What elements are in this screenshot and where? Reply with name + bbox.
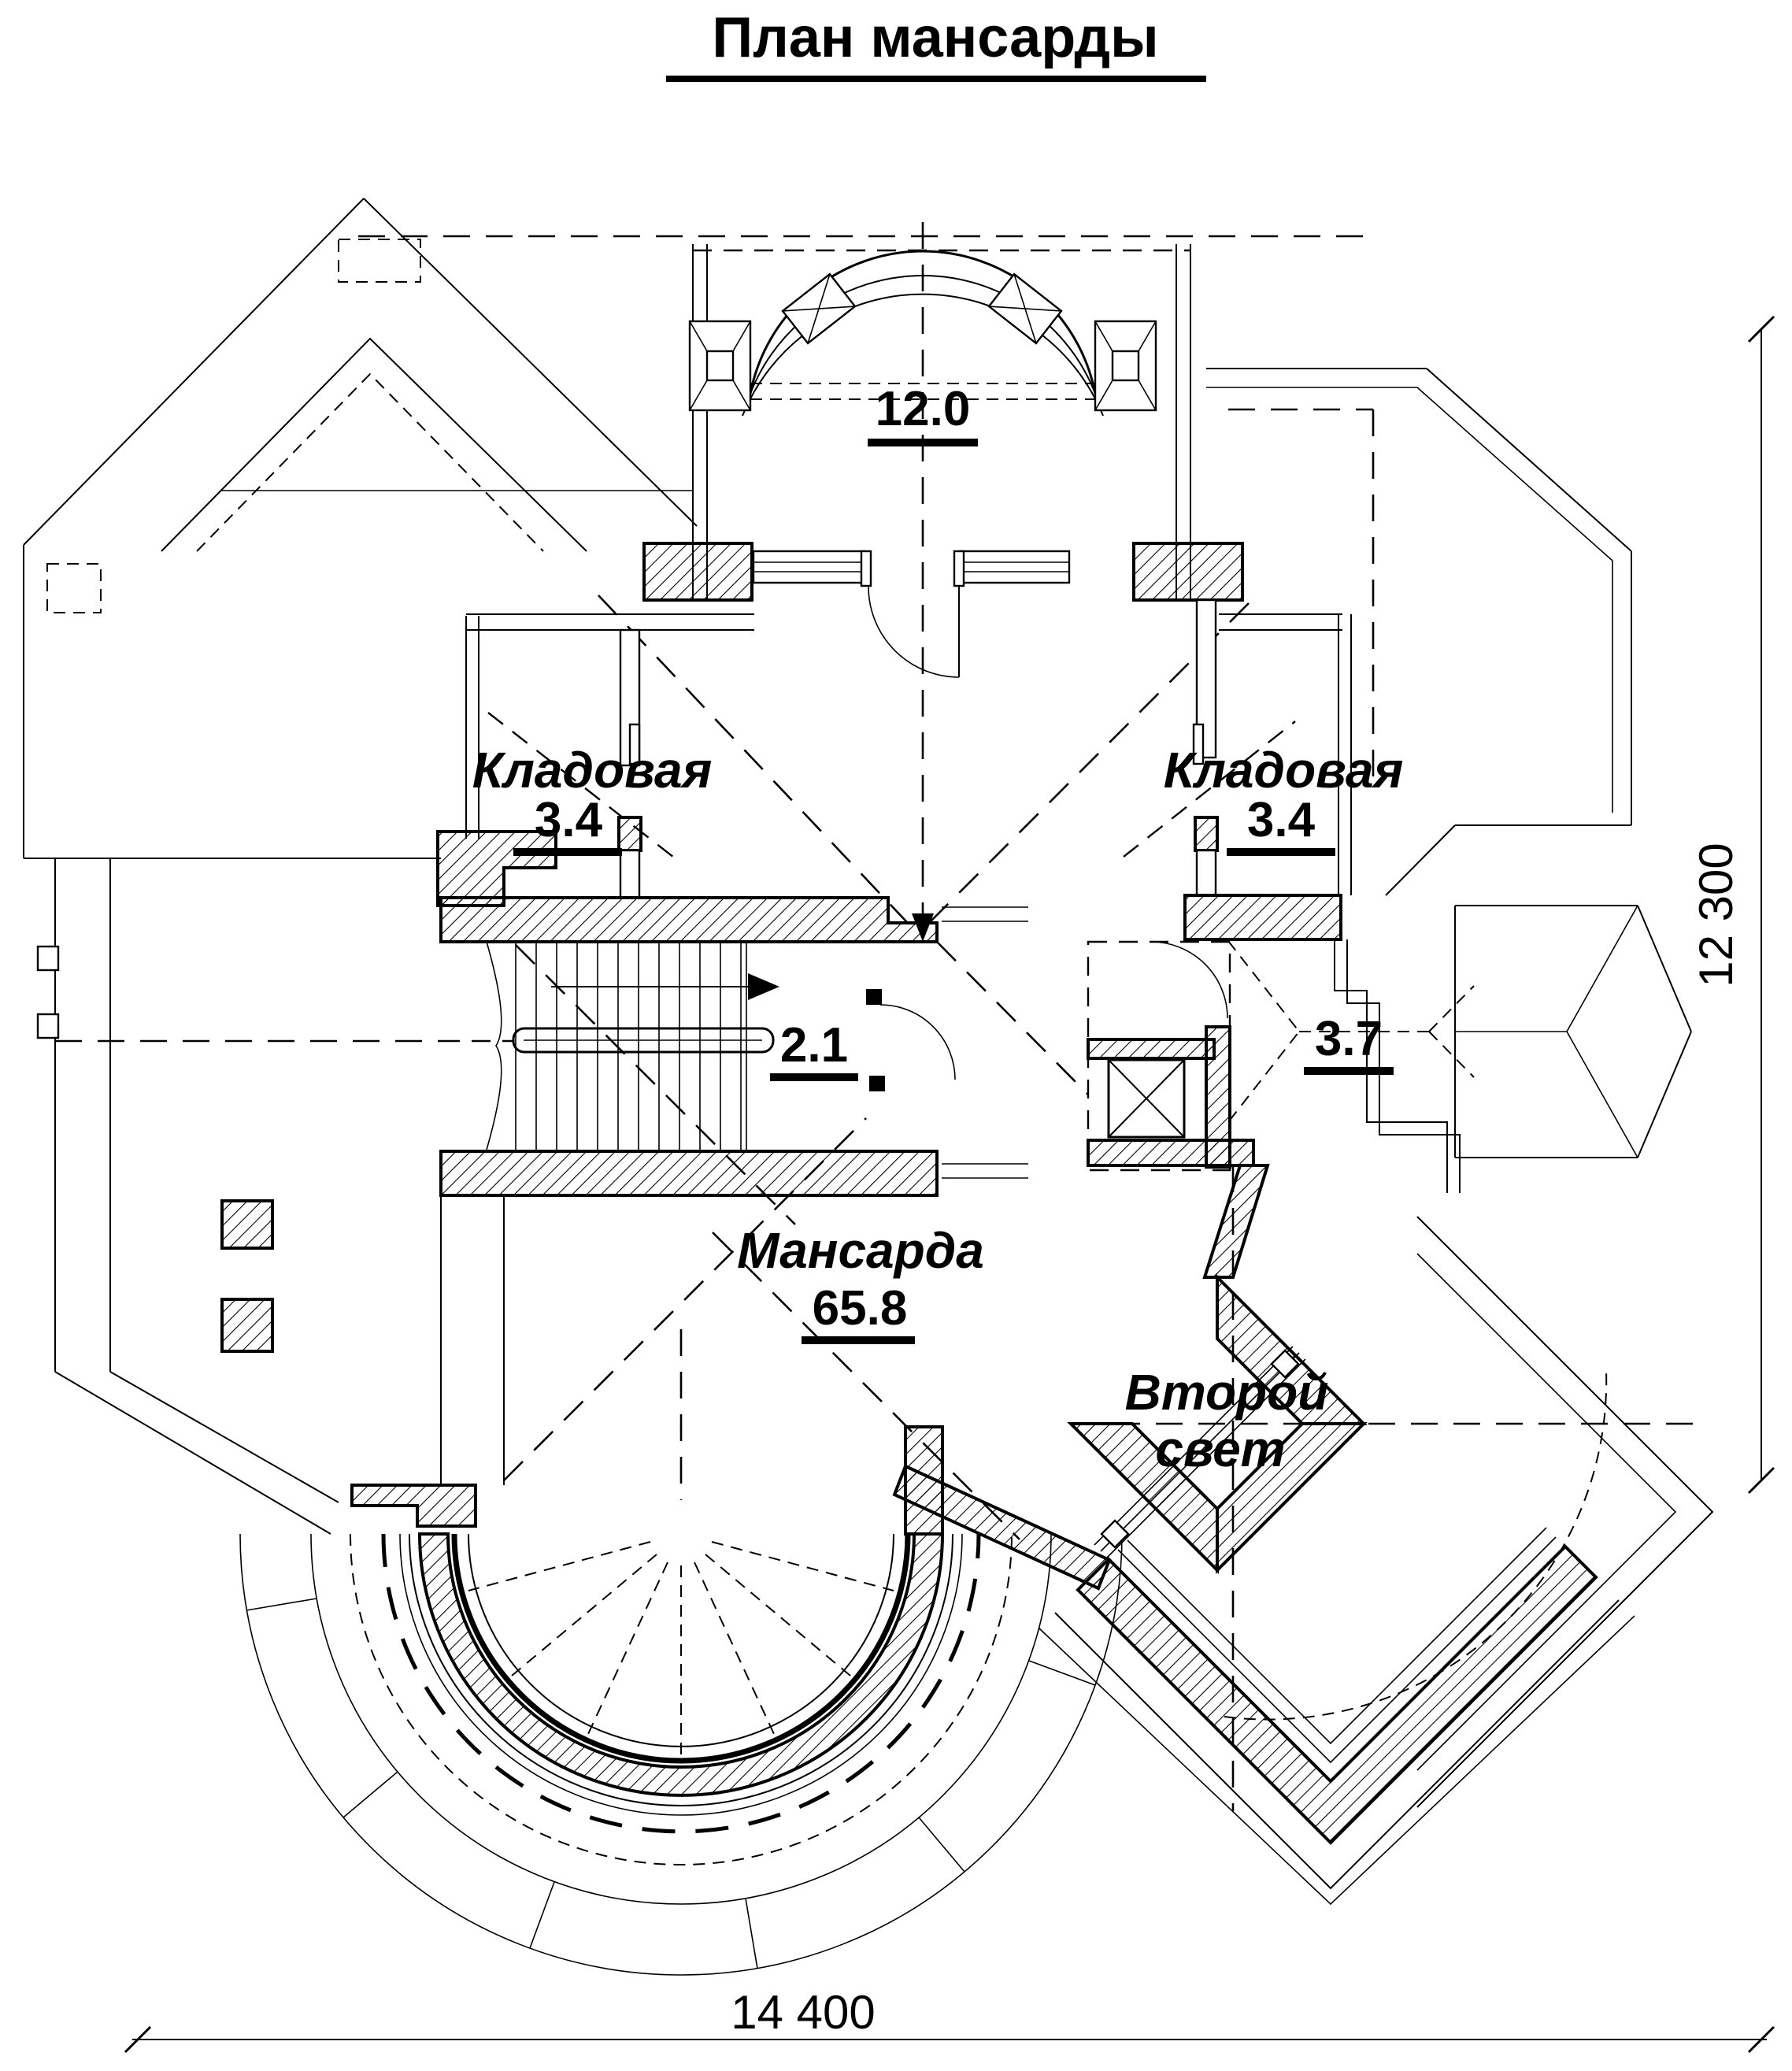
balcony-door <box>861 551 964 677</box>
balcony-wall-hatched <box>644 543 752 600</box>
stair-break-line <box>487 942 502 1150</box>
staircase <box>438 832 1028 1195</box>
door-jamb <box>866 989 882 1005</box>
stair-window-top <box>942 907 1028 921</box>
storage-left-name: Кладовая <box>472 742 713 798</box>
parapet-wall-hatched <box>1078 1547 1596 1843</box>
dimensions: 14 400 12 300 <box>125 317 1774 2052</box>
storage-right-partition <box>1197 850 1216 895</box>
balcony-area: 12.0 <box>876 382 971 436</box>
diamond-bay <box>894 1165 1635 1904</box>
storage-right-wall-hatched <box>1185 895 1341 939</box>
storage-left-outer-wall <box>466 616 479 839</box>
stair-treads <box>516 942 746 1150</box>
floorplan-canvas: План мансарды 12.0 Кладовая 3.4 Кладовая… <box>0 0 1792 2071</box>
se-roof-diamond <box>1417 1217 1712 1807</box>
elevator-wall-hatched <box>1088 1039 1214 1058</box>
left-wall-band <box>55 858 441 1372</box>
storage-left-partition <box>620 850 639 898</box>
closet-door-arc <box>1151 942 1227 1018</box>
parapet-roof-offset <box>1039 1616 1635 1904</box>
hall-area: 2.1 <box>780 1018 848 1073</box>
bay-left-pier-hatched <box>352 1485 476 1526</box>
stair-window-bottom <box>942 1164 1028 1178</box>
elevator-shaft <box>1088 942 1253 1170</box>
elevator-wall-hatched <box>1088 1140 1253 1165</box>
elevator-cab-x <box>1109 1060 1184 1137</box>
dim-height-text: 12 300 <box>1690 843 1742 987</box>
storage-left-top-wall <box>466 614 754 630</box>
storage-left-pier-hatched <box>619 817 641 850</box>
mansarda-left-wall <box>441 1195 504 1485</box>
arch-x-box <box>989 274 1061 343</box>
storage-right-name: Кладовая <box>1164 742 1404 798</box>
attic-area: 65.8 <box>813 1281 908 1336</box>
balcony-wall-hatched <box>1134 543 1242 600</box>
attic-name: Мансарда <box>737 1222 984 1279</box>
closet-area: 3.7 <box>1315 1012 1383 1066</box>
terrace-pier-hatched <box>222 1201 272 1248</box>
dim-width-text: 14 400 <box>731 1986 876 2039</box>
left-gable-chevron <box>161 339 587 551</box>
closet-window-band <box>1335 939 1447 1193</box>
void-window-jamb <box>1101 1521 1128 1547</box>
left-edge <box>24 545 110 858</box>
left-wall-window <box>38 1014 58 1038</box>
door-swing-arc <box>880 1005 955 1080</box>
dashed-lines <box>47 222 1693 1811</box>
left-gable-slope <box>364 198 697 526</box>
stair-bottom-wall-hatched <box>441 1151 937 1195</box>
left-gable-eave <box>24 198 364 545</box>
left-lower-diagonals <box>55 1372 339 1534</box>
balcony-window <box>753 551 865 583</box>
storage-left-area: 3.4 <box>535 793 603 847</box>
balcony-window <box>961 551 1069 583</box>
stair-top-wall-hatched <box>441 898 937 942</box>
door-jamb <box>869 1076 885 1091</box>
hall-door <box>866 989 955 1091</box>
chimney-dash <box>47 564 101 613</box>
labels: План мансарды 12.0 Кладовая 3.4 Кладовая… <box>472 6 1404 1477</box>
terrace-pier-hatched <box>222 1299 272 1351</box>
void-label-line2: свет <box>1155 1421 1285 1477</box>
pillar-right <box>1095 321 1156 410</box>
storage-right-top-wall <box>1219 614 1342 630</box>
chimney-dash <box>339 239 420 282</box>
hip-dash <box>937 942 1088 1095</box>
left-wall-window <box>38 947 58 970</box>
storage-right-pier-hatched <box>1195 817 1217 850</box>
page-title: План мансарды <box>712 6 1158 69</box>
right-bay-roof-ridges <box>1455 906 1638 1158</box>
stair-up-arrow <box>748 973 779 1000</box>
pillar-left <box>690 321 750 410</box>
balcony <box>644 244 1242 677</box>
void-label-line1: Второй <box>1125 1364 1329 1421</box>
void-connector-hatched <box>1205 1165 1268 1277</box>
closet-window-band <box>1347 939 1460 1193</box>
arch-x-box <box>783 274 855 343</box>
floorplan-page: План мансарды 12.0 Кладовая 3.4 Кладовая… <box>0 0 1792 2071</box>
storage-right-area: 3.4 <box>1247 793 1316 847</box>
